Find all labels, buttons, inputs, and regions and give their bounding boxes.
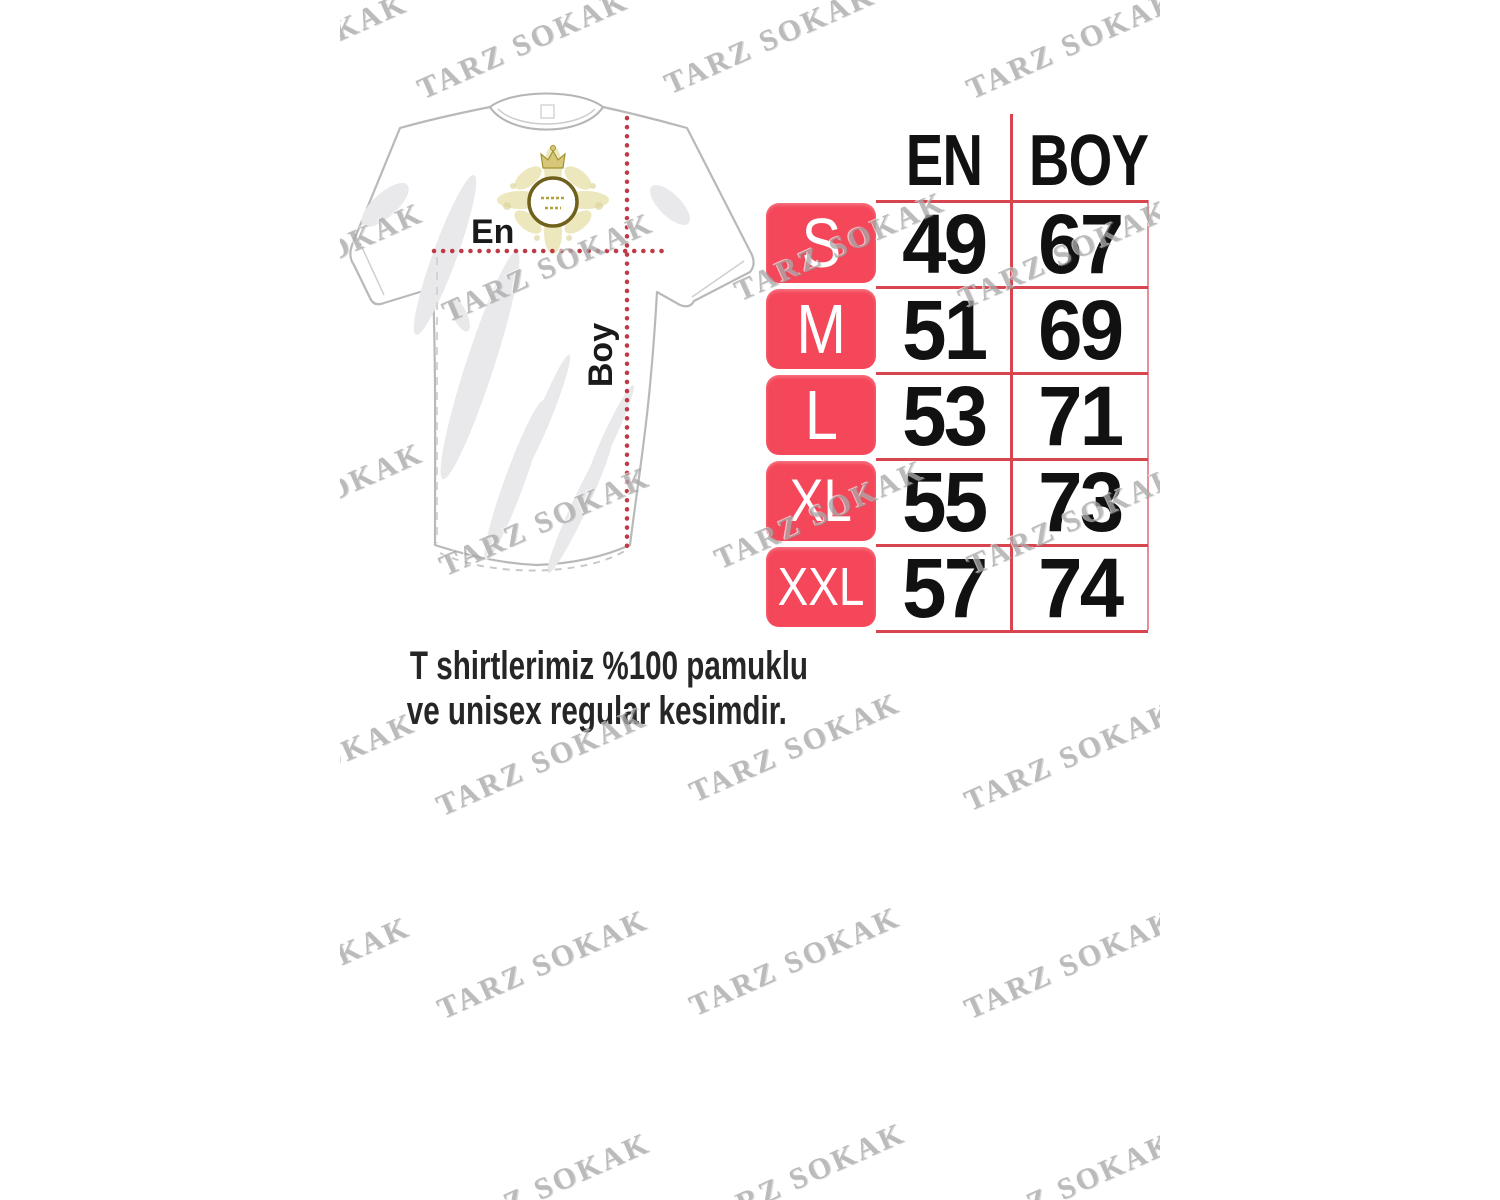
product-note-line1: T shirtlerimiz %100 pamuklu — [340, 644, 760, 689]
watermark-text: TARZ SOKAK — [434, 1126, 655, 1200]
watermark-text: TARZ SOKAK — [689, 1116, 910, 1200]
width-label: En — [471, 213, 514, 251]
watermark-text: TARZ SOKAK — [684, 900, 905, 1023]
collar-tag — [541, 105, 554, 118]
column-header-width: EN — [876, 120, 1012, 200]
watermark-text: TARZ SOKAK — [340, 910, 416, 1033]
table-cell-en: 53 — [876, 372, 1012, 458]
table-cell-boy: 73 — [1012, 458, 1148, 544]
table-cell-boy: 67 — [1012, 200, 1148, 286]
table-cell-en: 51 — [876, 286, 1012, 372]
table-cell-boy: 71 — [1012, 372, 1148, 458]
watermark-text: TARZ SOKAK — [957, 1126, 1160, 1200]
table-cell-boy: 69 — [1012, 286, 1148, 372]
table-cell-en: 57 — [876, 544, 1012, 630]
product-image-area: En Boy T shirtlerimiz %100 pamuklu ve un… — [340, 0, 1160, 1200]
product-note: T shirtlerimiz %100 pamuklu ve unisex re… — [340, 644, 760, 734]
length-label: Boy — [582, 323, 620, 387]
size-chip-m: M — [766, 289, 876, 369]
table-cell-en: 49 — [876, 200, 1012, 286]
table-cell-en: 55 — [876, 458, 1012, 544]
watermark-text: TARZ SOKAK — [959, 695, 1160, 818]
size-table: EN BOY S 49 67 M 51 69 L 53 71 XL 55 73 … — [766, 112, 1150, 634]
emblem-ring — [529, 178, 577, 226]
product-note-line2: ve unisex regular kesimdir. — [340, 689, 760, 734]
column-header-length: BOY — [1012, 120, 1148, 200]
size-chip-xl: XL — [766, 461, 876, 541]
size-chip-xxl: XXL — [766, 547, 876, 627]
size-chip-s: S — [766, 203, 876, 283]
size-chart-product-image: { "watermark": { "text": "TARZ SOKAK" },… — [0, 0, 1500, 1200]
tshirt-measurement-diagram: En Boy — [340, 85, 760, 585]
table-cell-boy: 74 — [1012, 544, 1148, 630]
size-chip-l: L — [766, 375, 876, 455]
watermark-text: TARZ SOKAK — [959, 903, 1160, 1026]
watermark-text: TARZ SOKAK — [961, 0, 1160, 107]
watermark-text: TARZ SOKAK — [432, 903, 653, 1026]
